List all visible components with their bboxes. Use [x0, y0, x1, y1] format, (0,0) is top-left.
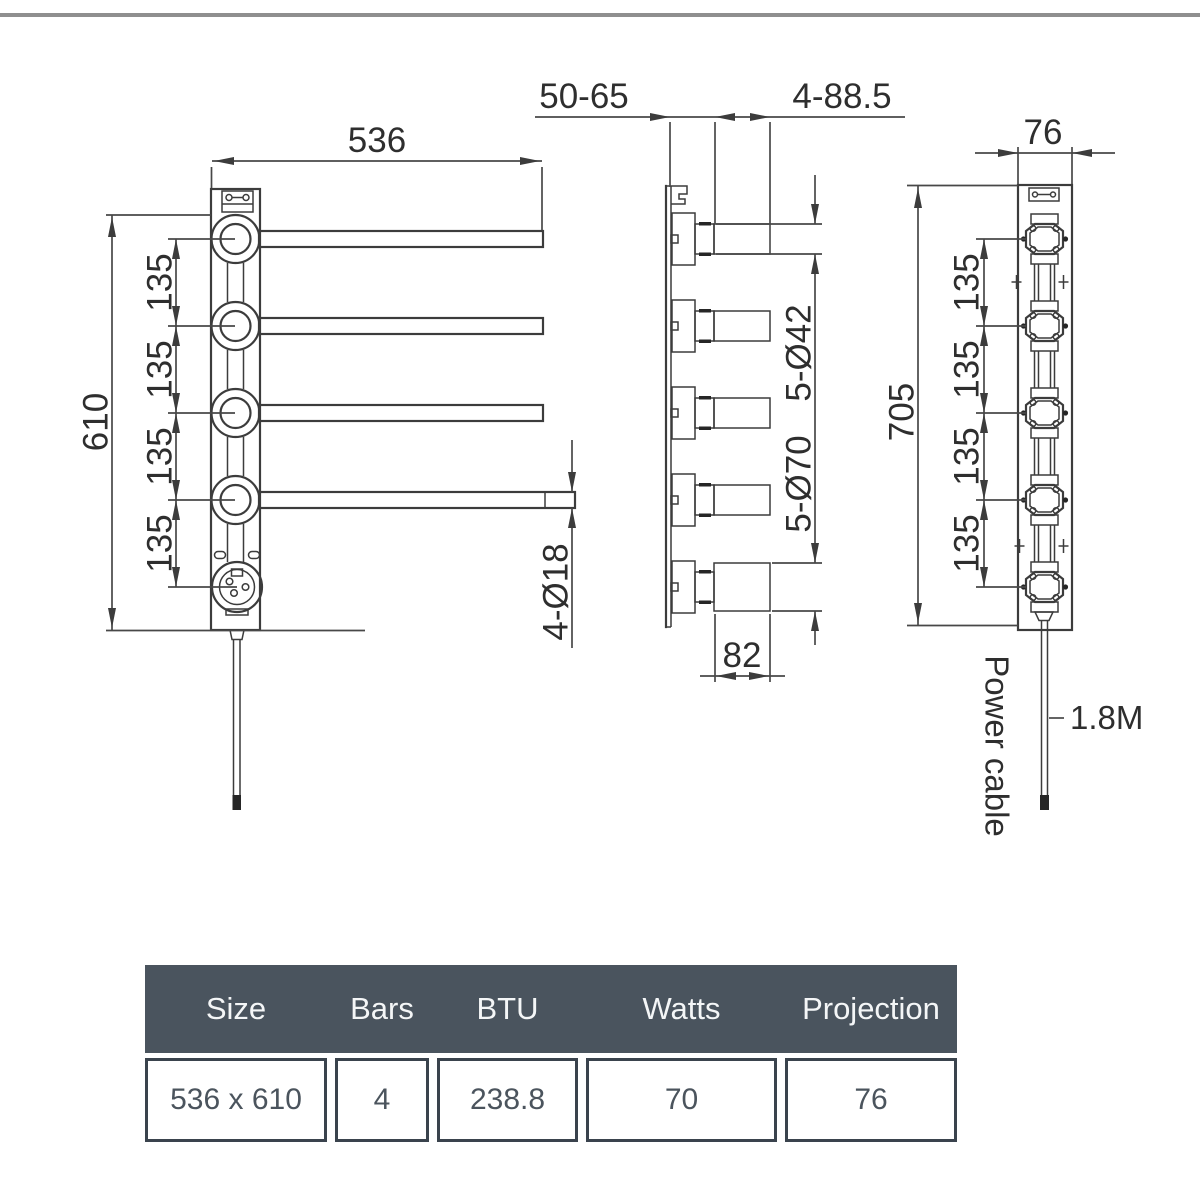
- side-hinge-bosses: [671, 213, 770, 613]
- spec-header-watts: Watts: [586, 965, 777, 1053]
- back-spacing-dim-label-1: 135: [948, 253, 987, 311]
- side-disc-diameter-label: 5-Ø70: [780, 435, 819, 532]
- back-spacing-dim-label-3: 135: [948, 427, 987, 485]
- back-spacing-dim-label-4: 135: [948, 514, 987, 572]
- spec-header-btu: BTU: [437, 965, 578, 1053]
- front-width-dim-label: 536: [348, 121, 406, 160]
- front-screw-slot-left: [215, 552, 226, 559]
- front-spacing-dimensions: 135 135 135 135: [141, 239, 238, 587]
- front-spacing-dim-label-1: 135: [141, 253, 180, 311]
- page: 536 610: [0, 0, 1200, 1200]
- side-hole-offset-label: 4-88.5: [792, 77, 891, 116]
- spec-value-watts: 70: [586, 1058, 777, 1142]
- spec-value-bars: 4: [335, 1058, 429, 1142]
- front-towel-bars: [259, 231, 575, 508]
- spec-table: Size Bars BTU Watts Projection 536 x 610…: [145, 965, 957, 1142]
- back-power-cable: [1035, 612, 1053, 810]
- spec-header-bars: Bars: [335, 965, 429, 1053]
- side-top-dimensions: 50-65 4-88.5: [535, 77, 905, 224]
- technical-drawing: 536 610: [0, 0, 1200, 940]
- side-diameter-dimensions: 5-Ø42 5-Ø70: [716, 175, 822, 645]
- back-spacing-dim-label-2: 135: [948, 340, 987, 398]
- side-block-width-dimension: 82: [700, 614, 785, 682]
- front-view: 536 610: [77, 121, 577, 810]
- back-top-bracket: [1029, 188, 1059, 201]
- front-spacing-dim-label-4: 135: [141, 514, 180, 572]
- front-power-cable: [230, 630, 244, 810]
- front-bar-diameter-dimension: 4-Ø18: [537, 440, 577, 648]
- front-hinge-discs: [212, 215, 260, 524]
- front-height-dim-label: 610: [77, 393, 116, 451]
- back-depth-dim-label: 76: [1024, 113, 1063, 152]
- front-bar-diameter-label: 4-Ø18: [537, 543, 576, 640]
- front-screw-slot-right: [249, 552, 260, 559]
- back-depth-dimension: 76: [975, 113, 1115, 184]
- back-spacing-dimensions: 135 135 135 135: [948, 239, 1027, 587]
- cable-length-label: 1.8M: [1070, 699, 1143, 736]
- back-view: 76 705: [883, 113, 1144, 837]
- front-spacing-dim-label-2: 135: [141, 340, 180, 398]
- spec-header-projection: Projection: [785, 965, 957, 1053]
- spec-value-btu: 238.8: [437, 1058, 578, 1142]
- front-power-connector: [212, 562, 262, 615]
- front-spacing-dim-label-3: 135: [141, 427, 180, 485]
- cable-length-callout: 1.8M: [1049, 699, 1143, 736]
- side-block-width-label: 82: [723, 636, 762, 675]
- front-top-bracket: [222, 191, 253, 212]
- power-cable-label: Power cable: [979, 655, 1016, 837]
- back-center-tube: [1035, 264, 1055, 562]
- spec-value-size: 536 x 610: [145, 1058, 327, 1142]
- back-height-dim-label: 705: [883, 383, 922, 441]
- side-barrel-diameter-label: 5-Ø42: [780, 304, 819, 401]
- side-wall-distance-label: 50-65: [539, 77, 629, 116]
- spec-value-projection: 76: [785, 1058, 957, 1142]
- back-conduit-boxes: [1021, 214, 1068, 612]
- spec-header-size: Size: [145, 965, 327, 1053]
- side-view: 50-65 4-88.5 5-Ø42 5-Ø70: [535, 77, 905, 682]
